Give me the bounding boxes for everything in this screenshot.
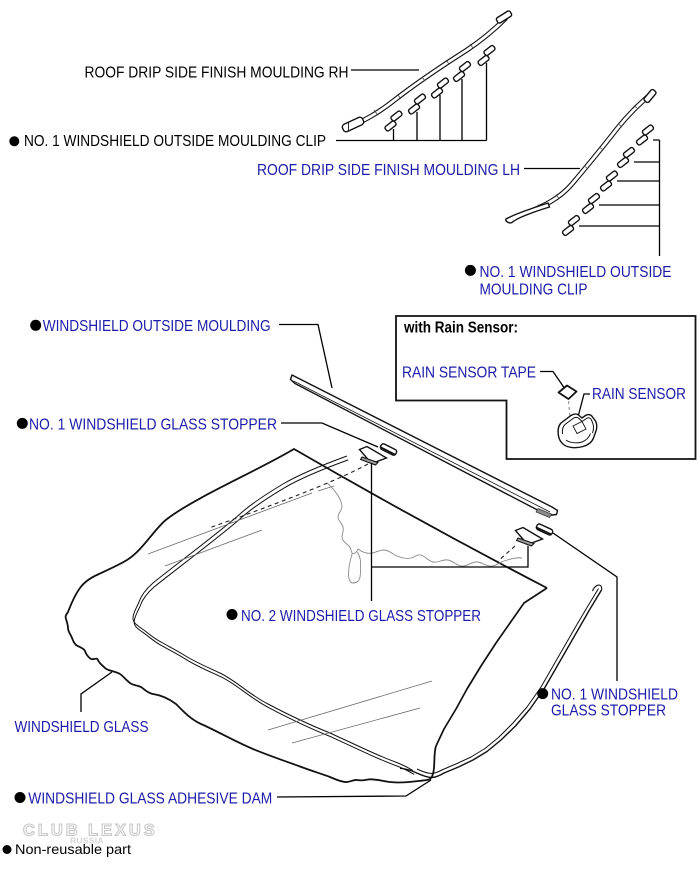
svg-text:MOULDING CLIP: MOULDING CLIP — [480, 282, 588, 299]
svg-text:ROOF DRIP SIDE FINISH MOULDING: ROOF DRIP SIDE FINISH MOULDING LH — [257, 162, 520, 179]
svg-text:NO. 2 WINDSHIELD GLASS STOPPER: NO. 2 WINDSHIELD GLASS STOPPER — [241, 608, 481, 625]
svg-text:RAIN SENSOR: RAIN SENSOR — [592, 386, 686, 403]
svg-text:with Rain Sensor:: with Rain Sensor: — [403, 320, 518, 337]
svg-text:ROOF DRIP SIDE FINISH MOULDING: ROOF DRIP SIDE FINISH MOULDING RH — [85, 64, 349, 81]
svg-text:WINDSHIELD GLASS ADHESIVE DAM: WINDSHIELD GLASS ADHESIVE DAM — [28, 791, 272, 808]
svg-text:GLASS STOPPER: GLASS STOPPER — [551, 703, 666, 720]
svg-text:WINDSHIELD GLASS: WINDSHIELD GLASS — [15, 719, 149, 736]
svg-text:RAIN SENSOR TAPE: RAIN SENSOR TAPE — [402, 365, 536, 382]
svg-text:NO. 1 WINDSHIELD OUTSIDE MOULD: NO. 1 WINDSHIELD OUTSIDE MOULDING CLIP — [24, 133, 326, 150]
svg-text:NO. 1 WINDSHIELD GLASS STOPPER: NO. 1 WINDSHIELD GLASS STOPPER — [29, 416, 277, 433]
svg-text:NO. 1 WINDSHIELD: NO. 1 WINDSHIELD — [551, 687, 678, 704]
svg-text:NO. 1 WINDSHIELD OUTSIDE: NO. 1 WINDSHIELD OUTSIDE — [480, 264, 672, 281]
svg-text:Non-reusable part: Non-reusable part — [15, 841, 131, 857]
svg-text:WINDSHIELD OUTSIDE MOULDING: WINDSHIELD OUTSIDE MOULDING — [43, 318, 271, 335]
